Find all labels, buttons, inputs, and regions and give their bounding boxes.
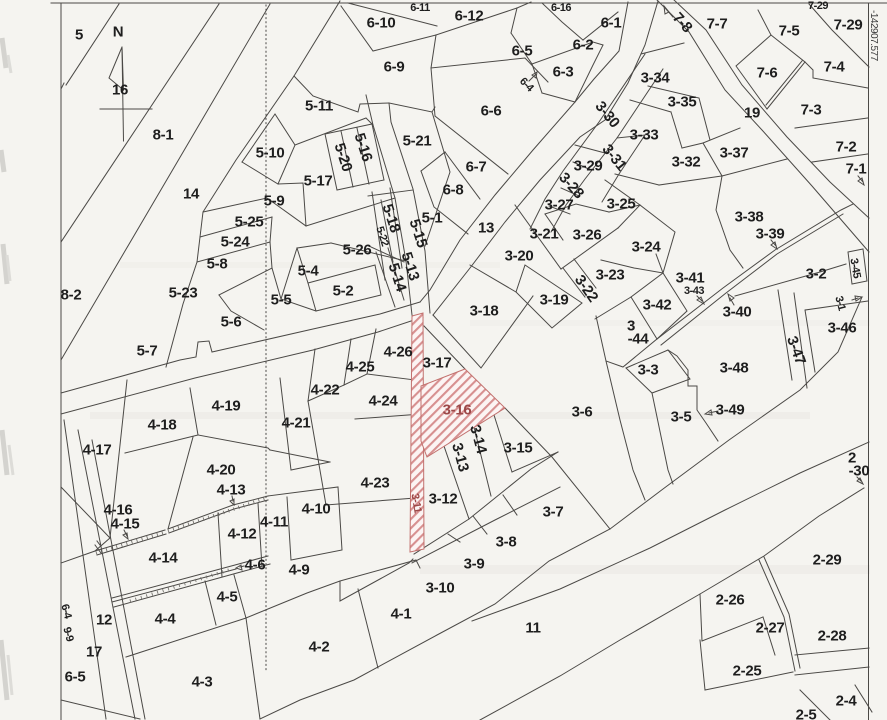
svg-text:3-25: 3-25 <box>607 196 636 213</box>
svg-text:6-10: 6-10 <box>367 15 396 32</box>
svg-text:3-5: 3-5 <box>671 409 692 426</box>
svg-text:3-29: 3-29 <box>574 158 603 175</box>
svg-text:7-5: 7-5 <box>779 23 800 40</box>
svg-text:N: N <box>113 24 124 41</box>
svg-text:7-3: 7-3 <box>801 102 822 119</box>
svg-text:5-4: 5-4 <box>298 263 320 280</box>
svg-text:4-10: 4-10 <box>302 501 331 518</box>
svg-text:3-15: 3-15 <box>504 440 533 457</box>
svg-text:6-11: 6-11 <box>410 2 430 14</box>
svg-text:2-28: 2-28 <box>818 628 847 645</box>
svg-text:4-20: 4-20 <box>207 462 236 479</box>
svg-text:12: 12 <box>96 612 112 629</box>
svg-text:4-3: 4-3 <box>192 674 213 691</box>
svg-text:3-20: 3-20 <box>505 248 534 265</box>
svg-text:5-24: 5-24 <box>221 234 251 251</box>
svg-text:3-38: 3-38 <box>735 209 764 226</box>
svg-text:4-15: 4-15 <box>111 516 140 533</box>
svg-text:5: 5 <box>75 27 83 44</box>
svg-text:4-11: 4-11 <box>260 514 288 531</box>
svg-text:6-16: 6-16 <box>551 2 571 14</box>
svg-text:6-6: 6-6 <box>481 103 502 120</box>
svg-text:4-22: 4-22 <box>311 382 340 399</box>
svg-text:5-26: 5-26 <box>343 242 372 259</box>
svg-text:4-26: 4-26 <box>384 344 413 361</box>
svg-text:4-13: 4-13 <box>217 482 246 499</box>
svg-text:3-34: 3-34 <box>641 70 671 87</box>
svg-text:6-1: 6-1 <box>601 15 622 32</box>
svg-text:3-19: 3-19 <box>540 292 569 309</box>
svg-text:3-48: 3-48 <box>720 360 749 377</box>
svg-text:3-35: 3-35 <box>668 94 697 111</box>
svg-text:3-12: 3-12 <box>429 491 458 508</box>
svg-text:4-23: 4-23 <box>361 475 390 492</box>
svg-text:-44: -44 <box>628 331 650 348</box>
svg-text:4-19: 4-19 <box>212 398 241 415</box>
svg-text:5-9: 5-9 <box>264 193 285 210</box>
svg-text:2-29: 2-29 <box>813 552 842 569</box>
svg-text:4-18: 4-18 <box>148 417 177 434</box>
svg-text:5-25: 5-25 <box>235 214 264 231</box>
svg-text:3-2: 3-2 <box>806 266 827 283</box>
svg-text:3-7: 3-7 <box>543 504 564 521</box>
svg-text:3-46: 3-46 <box>828 320 857 337</box>
svg-text:3-40: 3-40 <box>723 304 752 321</box>
svg-text:6-5: 6-5 <box>512 43 533 60</box>
svg-text:3-32: 3-32 <box>672 154 701 171</box>
svg-text:6-9: 6-9 <box>384 59 405 76</box>
svg-text:3-8: 3-8 <box>496 534 517 551</box>
svg-text:8-2: 8-2 <box>61 287 82 304</box>
svg-text:14: 14 <box>183 186 200 203</box>
svg-text:4-17: 4-17 <box>83 442 112 459</box>
svg-text:4-5: 4-5 <box>217 589 238 606</box>
svg-text:3-26: 3-26 <box>573 227 602 244</box>
svg-text:6-5: 6-5 <box>65 669 86 686</box>
svg-text:7-4: 7-4 <box>824 59 846 76</box>
svg-text:13: 13 <box>478 220 494 237</box>
svg-text:-30: -30 <box>849 463 870 480</box>
svg-text:4-24: 4-24 <box>369 393 399 410</box>
svg-text:3-49: 3-49 <box>716 402 745 419</box>
svg-text:6-3: 6-3 <box>553 64 574 81</box>
svg-text:2-5: 2-5 <box>796 707 817 720</box>
svg-text:3-23: 3-23 <box>596 267 625 284</box>
svg-text:4-2: 4-2 <box>309 639 330 656</box>
svg-text:3-6: 3-6 <box>572 404 593 421</box>
svg-text:16: 16 <box>112 82 128 99</box>
svg-text:4-21: 4-21 <box>282 415 311 432</box>
svg-text:5-7: 5-7 <box>137 343 158 360</box>
svg-text:7-1: 7-1 <box>846 161 867 178</box>
svg-text:3-16: 3-16 <box>443 402 472 419</box>
svg-text:5-21: 5-21 <box>403 133 432 150</box>
svg-text:4-6: 4-6 <box>245 557 266 574</box>
svg-text:19: 19 <box>744 105 760 122</box>
svg-text:3-37: 3-37 <box>720 145 749 162</box>
svg-text:7-29: 7-29 <box>834 17 863 34</box>
svg-text:6-2: 6-2 <box>573 37 594 54</box>
svg-text:7-7: 7-7 <box>707 16 728 33</box>
svg-text:2-27: 2-27 <box>756 620 785 637</box>
svg-text:4-12: 4-12 <box>228 526 257 543</box>
svg-text:3-39: 3-39 <box>756 226 785 243</box>
svg-text:7-29: 7-29 <box>808 0 828 12</box>
svg-text:17: 17 <box>86 644 102 661</box>
svg-text:5-6: 5-6 <box>221 314 242 331</box>
svg-text:3-10: 3-10 <box>426 580 455 597</box>
svg-text:3-21: 3-21 <box>530 226 559 243</box>
svg-text:8-1: 8-1 <box>153 127 174 144</box>
svg-text:3-42: 3-42 <box>643 297 672 314</box>
svg-text:11: 11 <box>525 620 540 637</box>
svg-text:6-7: 6-7 <box>466 159 487 176</box>
svg-text:5-11: 5-11 <box>305 98 333 115</box>
svg-text:6-12: 6-12 <box>455 8 484 25</box>
svg-text:4-25: 4-25 <box>346 359 375 376</box>
svg-text:7-2: 7-2 <box>836 139 857 156</box>
svg-text:3-3: 3-3 <box>638 362 659 379</box>
svg-text:3-33: 3-33 <box>630 127 659 144</box>
svg-text:5-8: 5-8 <box>207 256 228 273</box>
svg-text:3-18: 3-18 <box>470 303 499 320</box>
svg-text:5-23: 5-23 <box>169 285 198 302</box>
svg-text:2-4: 2-4 <box>836 693 858 710</box>
svg-text:-142907.577: -142907.577 <box>868 10 879 62</box>
svg-text:3-24: 3-24 <box>632 239 662 256</box>
svg-text:3-43: 3-43 <box>684 285 704 297</box>
svg-text:5-10: 5-10 <box>256 145 285 162</box>
svg-text:3-17: 3-17 <box>423 355 452 372</box>
svg-text:5-2: 5-2 <box>333 283 354 300</box>
svg-text:3-41: 3-41 <box>676 270 705 287</box>
svg-text:5-1: 5-1 <box>422 210 443 227</box>
svg-text:5-17: 5-17 <box>304 173 333 190</box>
svg-text:7-6: 7-6 <box>757 65 778 82</box>
svg-text:4-14: 4-14 <box>149 550 179 567</box>
svg-text:5-5: 5-5 <box>271 292 292 309</box>
svg-text:4-1: 4-1 <box>391 606 412 623</box>
svg-text:4-9: 4-9 <box>289 562 310 579</box>
svg-text:3-27: 3-27 <box>545 197 574 214</box>
svg-text:6-8: 6-8 <box>443 182 464 199</box>
svg-text:3-9: 3-9 <box>464 556 485 573</box>
svg-text:2-25: 2-25 <box>733 663 762 680</box>
svg-text:4-4: 4-4 <box>155 611 177 628</box>
svg-text:2-26: 2-26 <box>716 592 745 609</box>
